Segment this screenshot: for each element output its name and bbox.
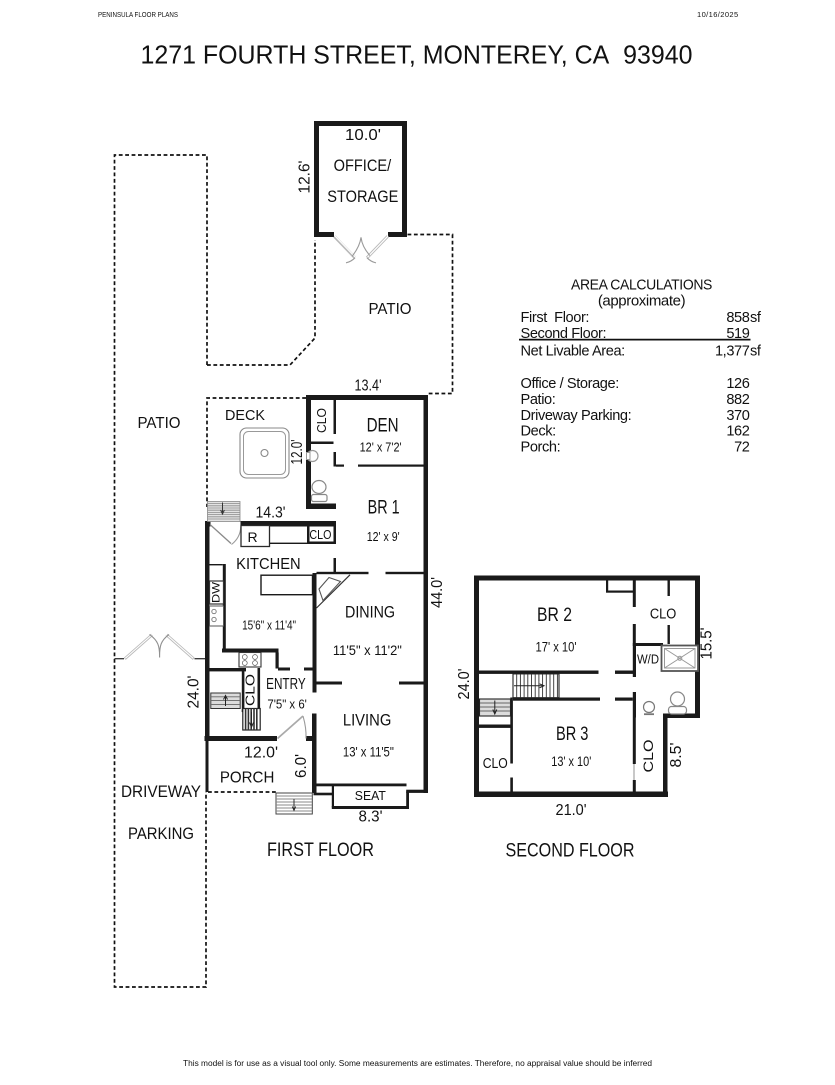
svg-text:8.5': 8.5' — [668, 743, 685, 768]
svg-text:DINING: DINING — [345, 604, 395, 622]
svg-text:BR 1: BR 1 — [368, 497, 400, 519]
svg-text:44.0': 44.0' — [429, 577, 446, 608]
svg-text:AREA CALCULATIONS: AREA CALCULATIONS — [571, 277, 712, 294]
svg-text:15'6" x 11'4": 15'6" x 11'4" — [242, 618, 296, 633]
svg-text:13' x 10': 13' x 10' — [551, 754, 591, 769]
svg-text:6.0': 6.0' — [293, 754, 310, 778]
svg-text:Porch:: Porch: — [521, 440, 561, 456]
svg-text:8.3': 8.3' — [359, 809, 383, 826]
svg-text:ENTRY: ENTRY — [266, 676, 306, 693]
svg-text:10.0': 10.0' — [345, 127, 381, 144]
svg-text:13' x 11'5": 13' x 11'5" — [343, 745, 394, 760]
svg-text:12' x 9': 12' x 9' — [367, 529, 400, 544]
svg-text:SECOND FLOOR: SECOND FLOOR — [506, 840, 635, 862]
svg-text:KITCHEN: KITCHEN — [236, 556, 301, 573]
svg-text:12.6': 12.6' — [297, 161, 314, 194]
svg-text:Office / Storage:: Office / Storage: — [521, 376, 619, 392]
svg-text:PARKING: PARKING — [128, 825, 194, 843]
svg-text:13.4': 13.4' — [355, 378, 382, 395]
svg-text:BR 2: BR 2 — [537, 604, 572, 626]
svg-text:17' x 10': 17' x 10' — [536, 640, 577, 655]
svg-text:SEAT: SEAT — [355, 788, 386, 803]
svg-text:DECK: DECK — [225, 408, 265, 424]
svg-text:CLO: CLO — [640, 739, 656, 772]
svg-text:12' x 7'2': 12' x 7'2' — [360, 440, 402, 455]
svg-text:1,377: 1,377 — [715, 344, 750, 360]
svg-text:14.3': 14.3' — [256, 505, 286, 522]
svg-text:sf: sf — [750, 344, 762, 360]
svg-text:W/D: W/D — [637, 653, 659, 667]
svg-text:This model is for use as a vis: This model is for use as a visual tool o… — [183, 1059, 652, 1068]
svg-text:OFFICE/: OFFICE/ — [334, 157, 392, 175]
svg-text:CLO: CLO — [483, 756, 508, 772]
svg-text:LIVING: LIVING — [343, 711, 392, 730]
svg-text:882: 882 — [726, 392, 749, 408]
svg-text:162: 162 — [726, 424, 749, 440]
svg-text:DW: DW — [211, 581, 223, 603]
svg-text:24.0': 24.0' — [456, 669, 473, 700]
svg-text:PATIO: PATIO — [369, 301, 412, 318]
svg-text:126: 126 — [726, 376, 749, 392]
svg-text:11'5" x 11'2": 11'5" x 11'2" — [333, 643, 402, 658]
svg-text:sf: sf — [750, 310, 762, 326]
svg-text:FIRST FLOOR: FIRST FLOOR — [267, 839, 374, 861]
svg-text:72: 72 — [734, 440, 750, 456]
svg-text:First Floor:: First Floor: — [521, 310, 590, 326]
svg-text:CLO: CLO — [650, 607, 677, 623]
svg-text:R: R — [247, 529, 257, 545]
svg-text:Patio:: Patio: — [521, 392, 556, 408]
svg-text:15.5': 15.5' — [699, 628, 716, 660]
svg-text:STORAGE: STORAGE — [327, 188, 398, 206]
svg-text:Deck:: Deck: — [521, 424, 556, 440]
svg-text:PENINSULA FLOOR PLANS: PENINSULA FLOOR PLANS — [98, 10, 178, 19]
svg-text:CLO: CLO — [314, 408, 329, 433]
svg-text:DRIVEWAY: DRIVEWAY — [121, 783, 201, 801]
svg-text:12.0': 12.0' — [289, 439, 306, 464]
svg-text:7'5" x 6': 7'5" x 6' — [267, 697, 307, 712]
svg-text:(approximate): (approximate) — [598, 293, 686, 310]
svg-text:21.0': 21.0' — [556, 802, 587, 819]
svg-text:12.0': 12.0' — [244, 745, 278, 762]
svg-text:PORCH: PORCH — [220, 770, 275, 787]
svg-text:BR 3: BR 3 — [556, 723, 589, 745]
svg-text:370: 370 — [726, 408, 749, 424]
svg-text:858: 858 — [726, 310, 749, 326]
svg-text:1271 FOURTH STREET, MONTEREY,: 1271 FOURTH STREET, MONTEREY, CA 93940 — [141, 40, 693, 70]
svg-text:CLO: CLO — [244, 674, 258, 706]
svg-text:PATIO: PATIO — [138, 415, 181, 432]
svg-text:Net Livable Area:: Net Livable Area: — [521, 344, 625, 360]
svg-text:24.0': 24.0' — [186, 676, 203, 709]
svg-text:Driveway Parking:: Driveway Parking: — [521, 408, 632, 424]
svg-text:DEN: DEN — [367, 415, 399, 437]
svg-text:CLO: CLO — [309, 528, 331, 542]
svg-text:10/16/2025: 10/16/2025 — [697, 10, 739, 19]
